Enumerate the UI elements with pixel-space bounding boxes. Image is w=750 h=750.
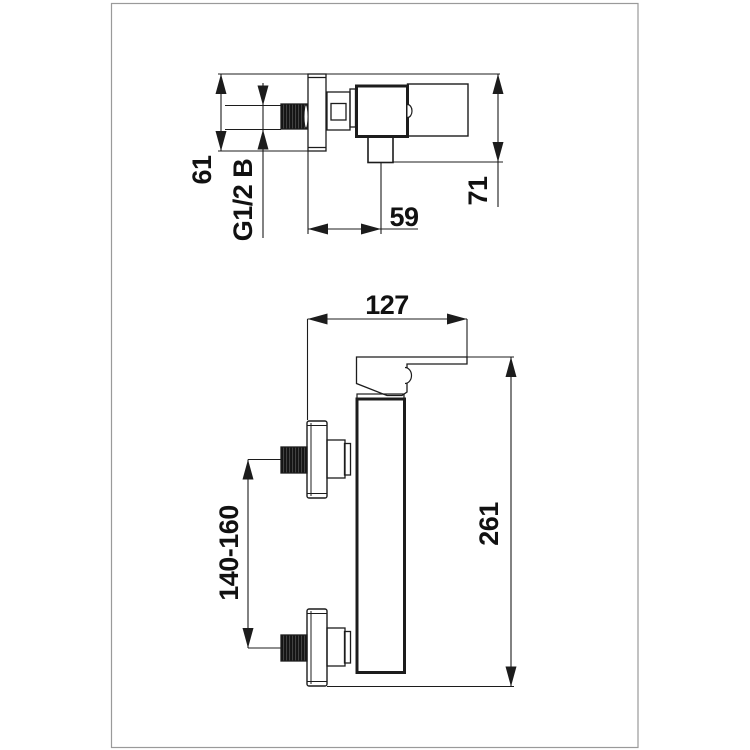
inlet-thread <box>281 635 307 661</box>
cartridge-button <box>408 105 413 118</box>
inlet-thread <box>281 104 307 129</box>
thread-end-face <box>304 105 308 128</box>
drawing-canvas: 61 G1/2 B 59 71 127 140-160 261 <box>0 0 750 750</box>
technical-drawing: 61 G1/2 B 59 71 127 140-160 261 <box>0 0 750 750</box>
dim-label-thread-size: G1/2 B <box>228 159 258 242</box>
inlet-thread <box>281 447 307 473</box>
dim-label-127: 127 <box>365 290 409 320</box>
dim-label-61: 61 <box>187 155 217 185</box>
dim-label-261: 261 <box>474 502 504 546</box>
dim-label-59: 59 <box>389 202 419 232</box>
dim-label-71: 71 <box>463 176 493 206</box>
dim-label-140-160: 140-160 <box>214 505 244 601</box>
